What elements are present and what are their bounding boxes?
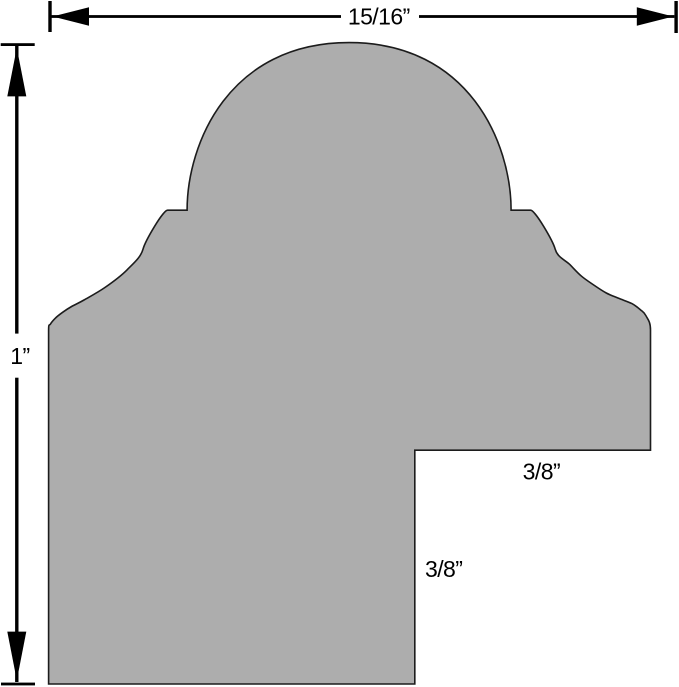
svg-text:3/8”: 3/8” bbox=[425, 556, 462, 582]
svg-text:15/16”: 15/16” bbox=[348, 4, 410, 30]
svg-text:3/8”: 3/8” bbox=[523, 459, 560, 485]
svg-text:1”: 1” bbox=[10, 343, 29, 369]
